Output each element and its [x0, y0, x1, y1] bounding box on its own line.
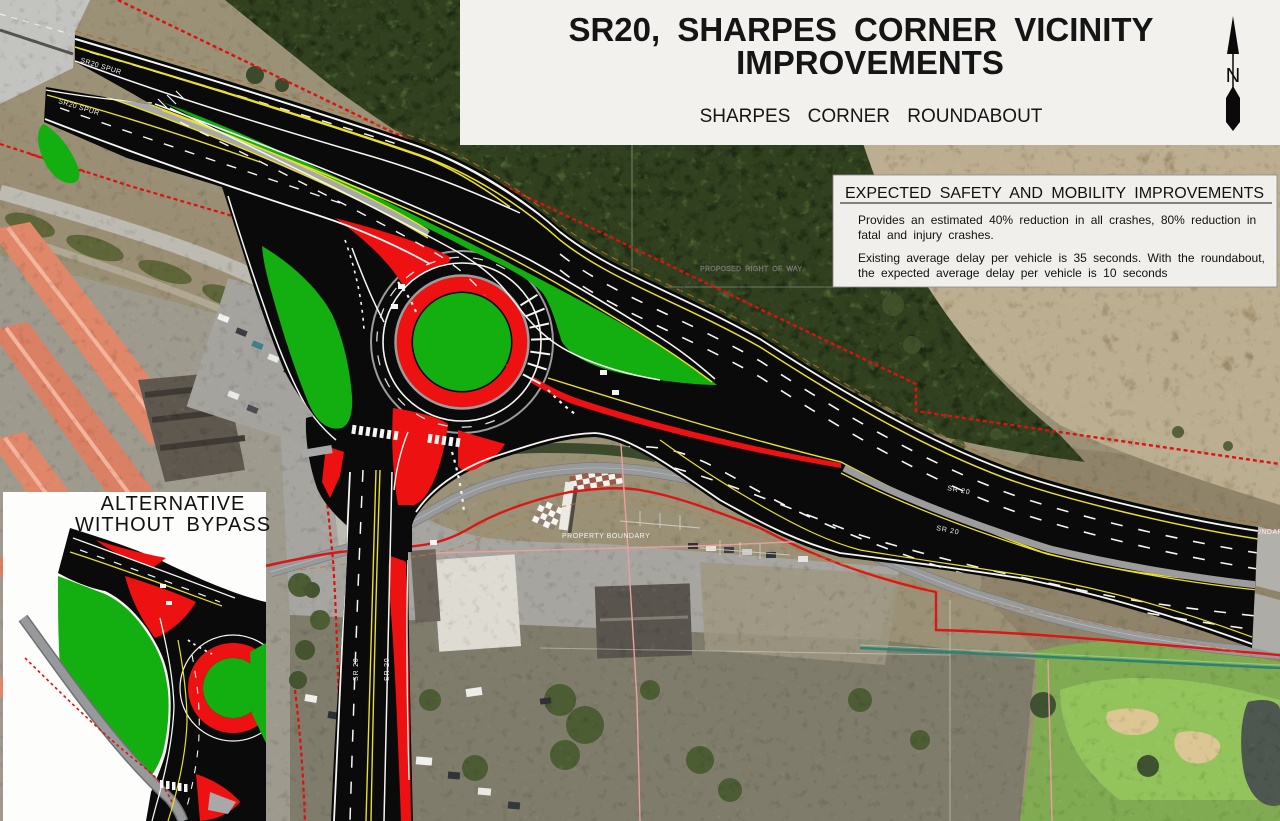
- svg-text:fatal and injury crashes.: fatal and injury crashes.: [858, 228, 994, 242]
- svg-text:EXPECTED SAFETY AND MOBILITY I: EXPECTED SAFETY AND MOBILITY IMPROVEMENT…: [845, 185, 1264, 202]
- svg-text:ALTERNATIVE: ALTERNATIVE: [101, 493, 246, 515]
- svg-text:PROPOSED RIGHT OF WAY: PROPOSED RIGHT OF WAY: [700, 266, 802, 273]
- svg-text:SR 20: SR 20: [384, 658, 391, 681]
- svg-text:N: N: [1226, 65, 1240, 87]
- svg-text:SR 20: SR 20: [353, 658, 360, 681]
- svg-text:SHARPES CORNER ROUNDABOUT: SHARPES CORNER ROUNDABOUT: [700, 106, 1043, 127]
- svg-text:Provides an estimated 40% red: Provides an estimated 40% reduction in a…: [858, 213, 1256, 227]
- svg-text:the expected average delay: the expected average delay per vehicle i…: [858, 266, 1168, 280]
- svg-text:SR20, SHARPES CORNER VICINIT: SR20, SHARPES CORNER VICINITY: [568, 11, 1153, 48]
- svg-text:PROPERTY BOUNDARY: PROPERTY BOUNDARY: [562, 533, 650, 540]
- svg-text:WITHOUT BYPASS: WITHOUT BYPASS: [75, 514, 271, 536]
- svg-text:Existing average delay per: Existing average delay per vehicle is 35…: [858, 251, 1265, 265]
- svg-text:IMPROVEMENTS: IMPROVEMENTS: [736, 44, 1004, 81]
